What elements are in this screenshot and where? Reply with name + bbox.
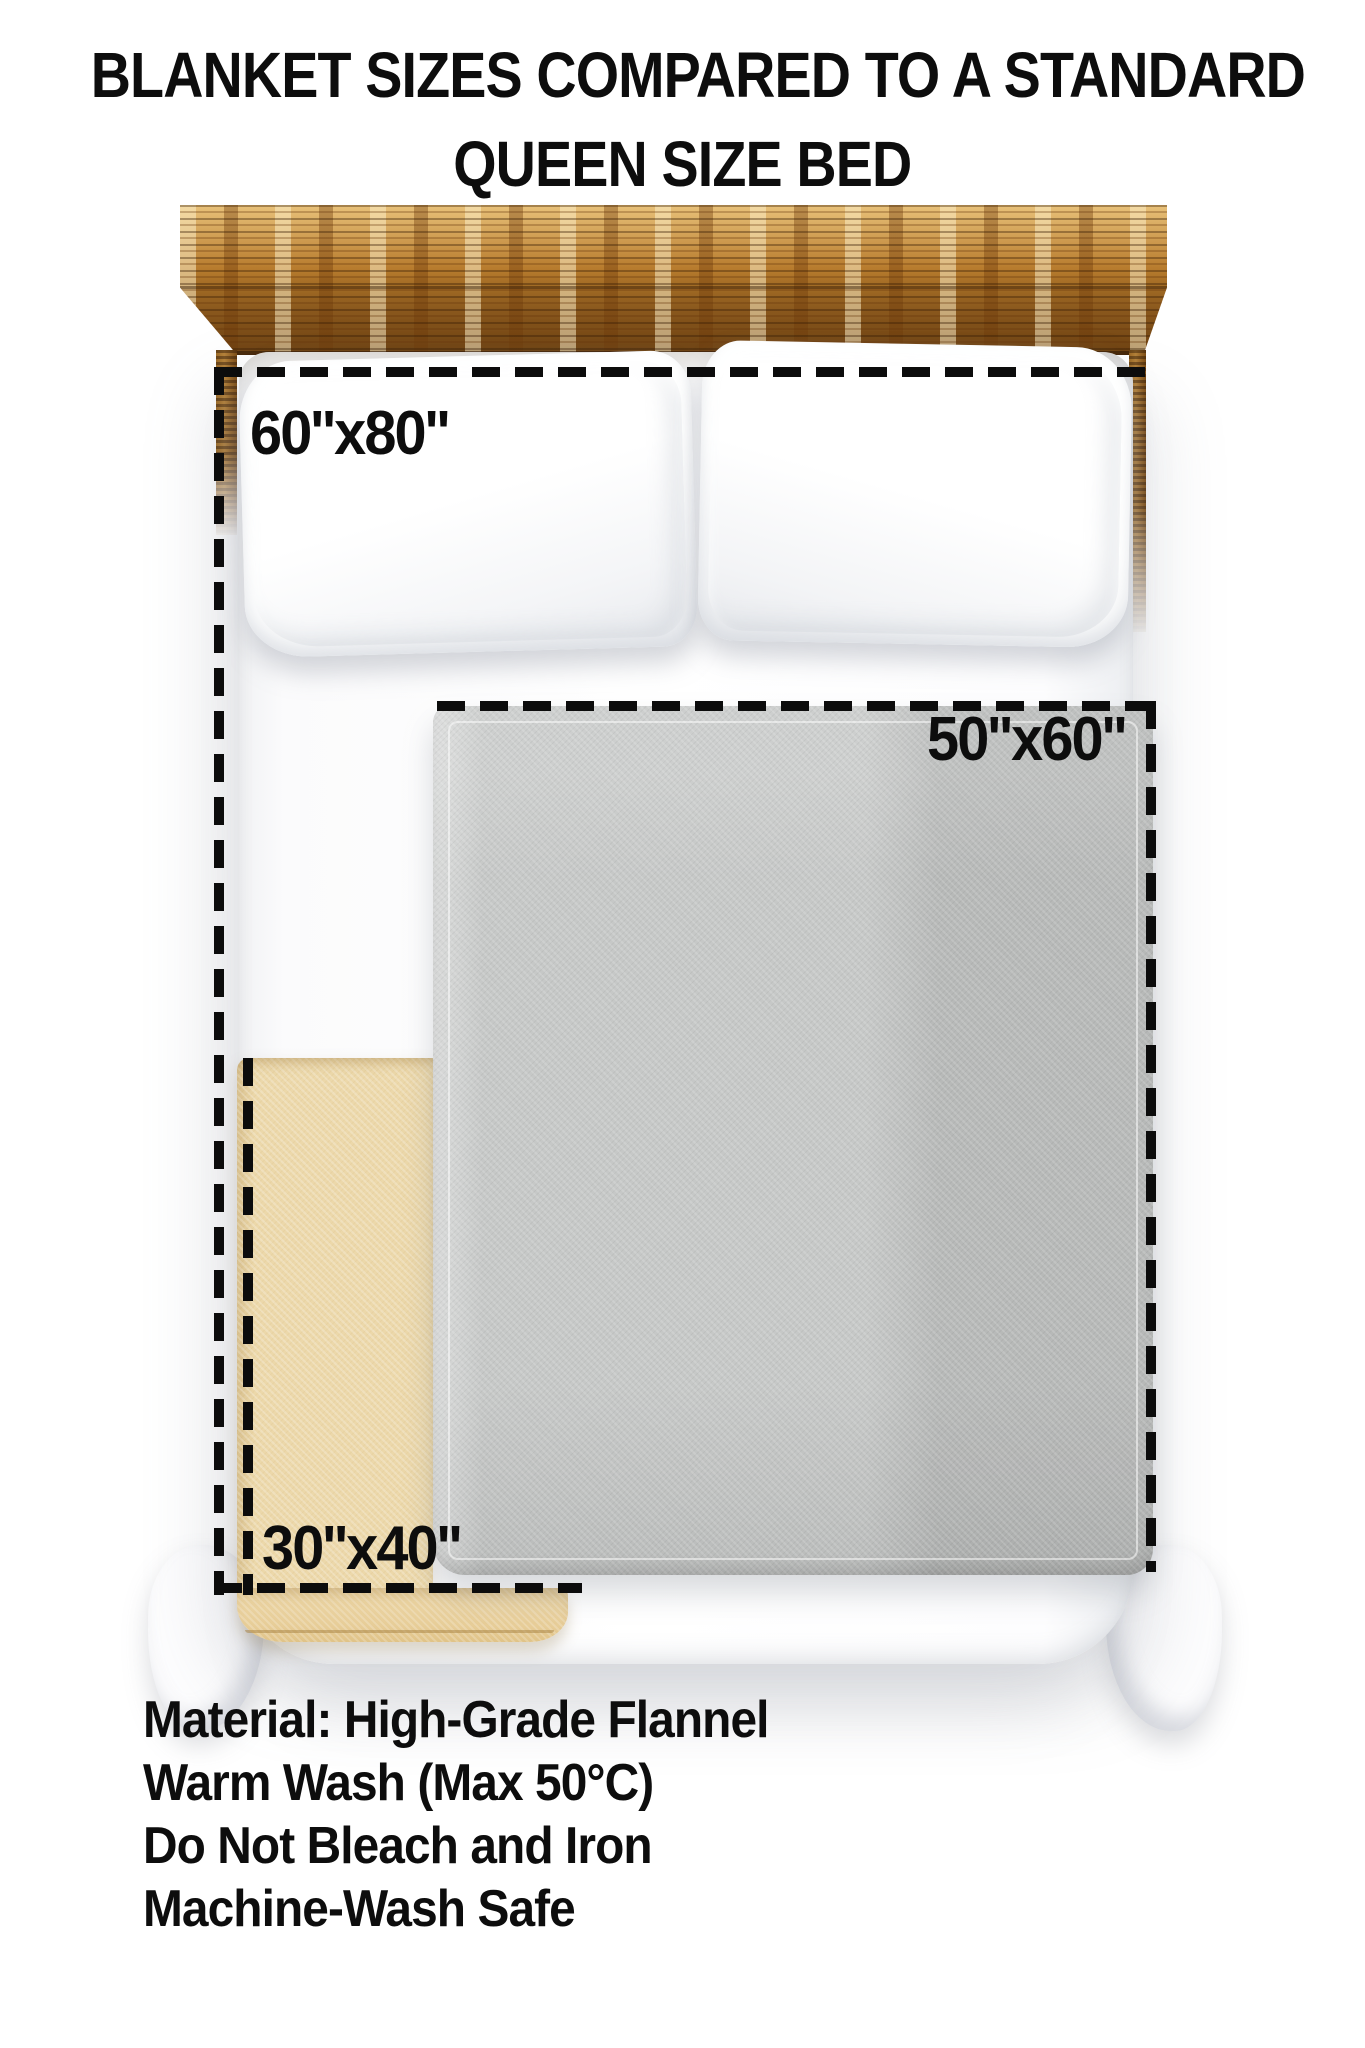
- title-line-1: BLANKET SIZES COMPARED TO A STANDARD: [0, 31, 1365, 120]
- infographic-canvas: BLANKET SIZES COMPARED TO A STANDARD QUE…: [0, 0, 1365, 2048]
- size-label-50x60: 50''x60'': [927, 709, 1125, 771]
- outline-60x80-left: [214, 367, 224, 1595]
- care-line-bleach-iron: Do Not Bleach and Iron: [143, 1815, 823, 1878]
- outline-60x80-top: [214, 367, 1155, 377]
- title-line-2: QUEEN SIZE BED: [0, 120, 1365, 209]
- outline-30x40-left: [243, 1058, 253, 1595]
- pillow-right: [697, 340, 1133, 648]
- care-instructions: Material: High-Grade Flannel Warm Wash (…: [143, 1689, 823, 1941]
- outline-50x60-right: [1146, 701, 1156, 1572]
- blanket-50x60-gray: [433, 706, 1153, 1575]
- pillow-left: [238, 350, 698, 659]
- outline-60x80-30x40-bottom: [214, 1583, 582, 1593]
- care-line-material: Material: High-Grade Flannel: [143, 1689, 823, 1752]
- page-title: BLANKET SIZES COMPARED TO A STANDARD QUE…: [0, 31, 1365, 209]
- care-line-wash-temp: Warm Wash (Max 50°C): [143, 1752, 823, 1815]
- size-label-30x40: 30''x40'': [262, 1518, 460, 1580]
- size-label-60x80: 60''x80'': [250, 403, 448, 465]
- blanket-30x40-bottom-fold: [237, 1588, 568, 1642]
- blanket-30x40-beige: [237, 1058, 433, 1592]
- bed-headboard-wood: [180, 205, 1167, 355]
- care-line-machine-wash: Machine-Wash Safe: [143, 1878, 823, 1941]
